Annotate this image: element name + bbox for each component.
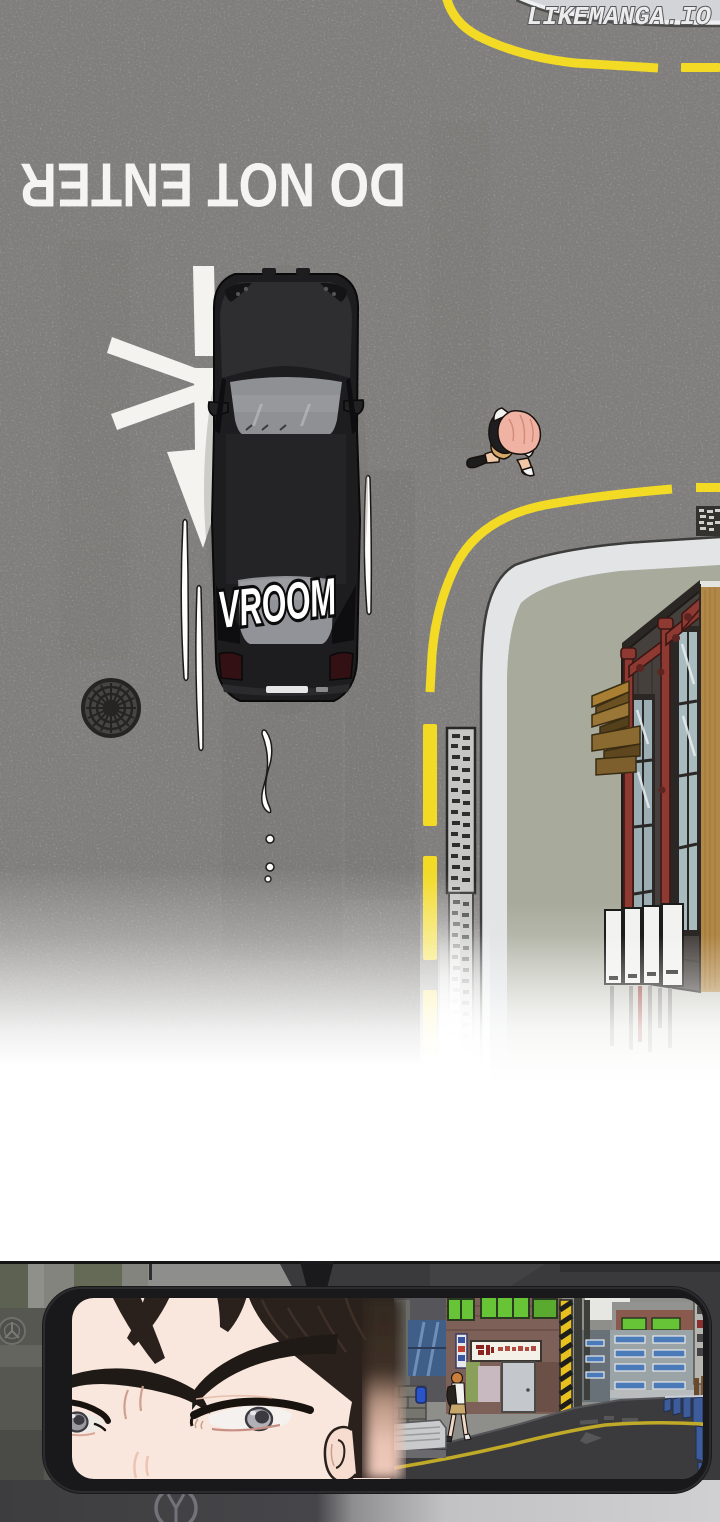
- svg-text:LIKEMANGA.IO: LIKEMANGA.IO: [527, 2, 711, 32]
- svg-text:DO NOT ENTER: DO NOT ENTER: [20, 150, 406, 219]
